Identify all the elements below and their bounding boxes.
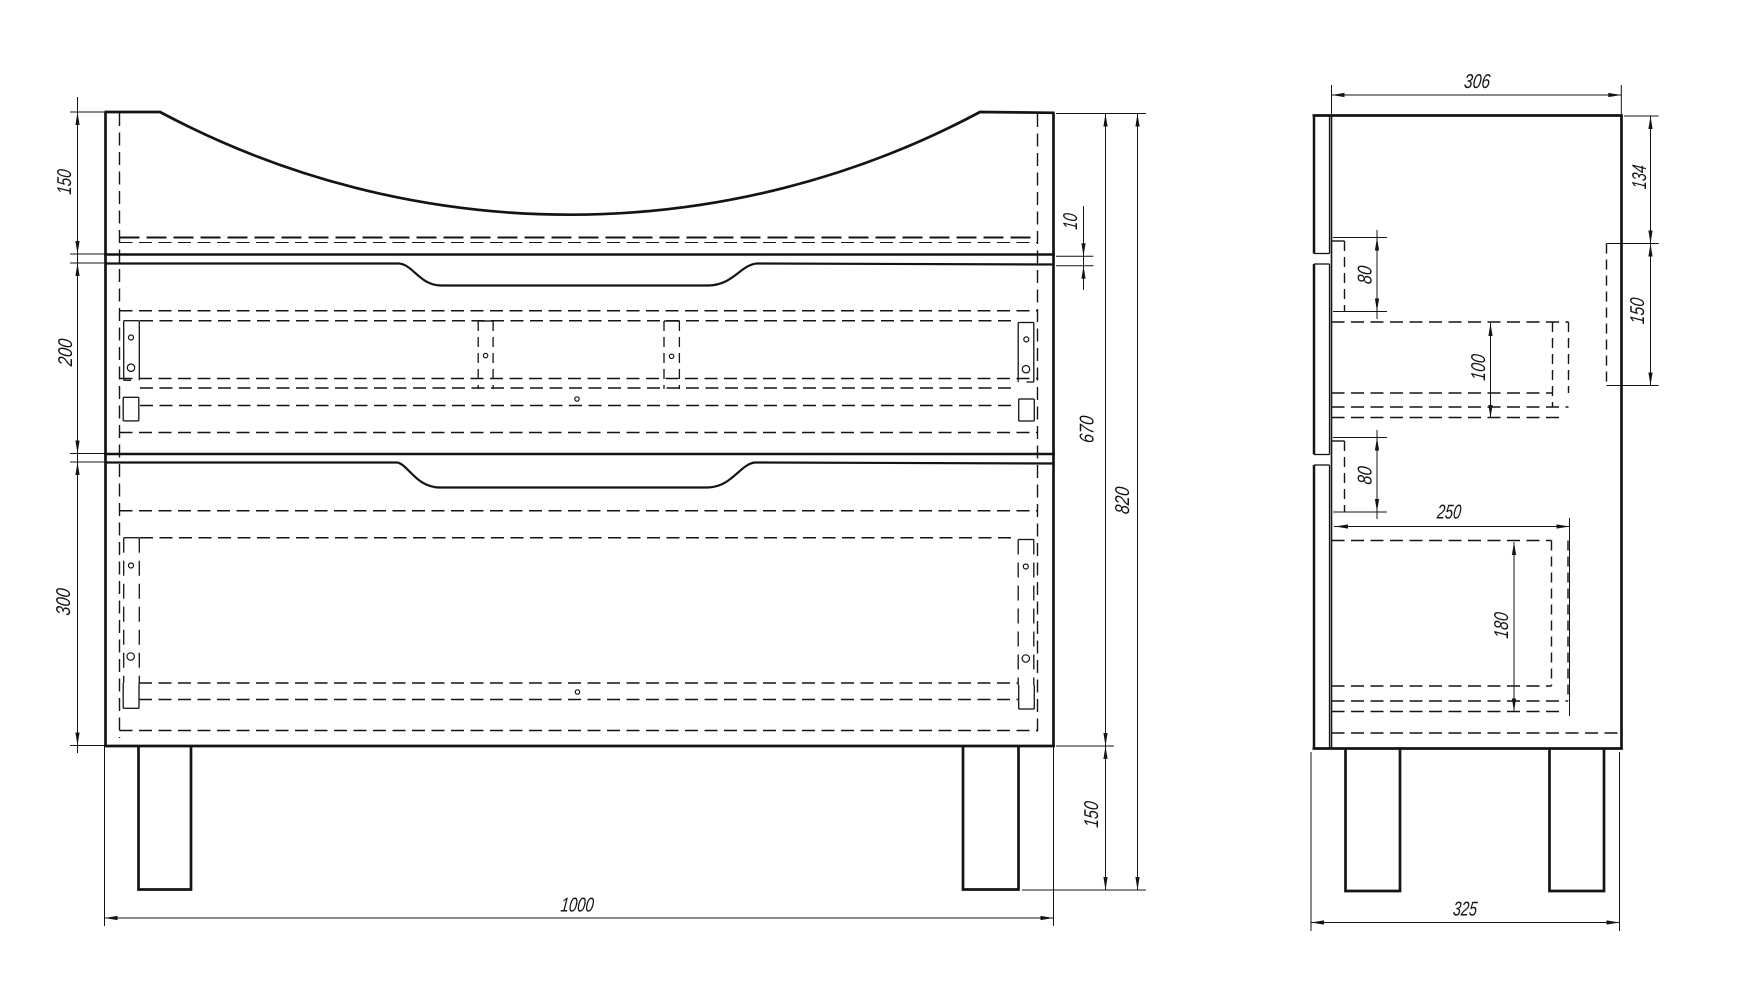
svg-text:1000: 1000 [560,895,595,917]
svg-text:80: 80 [1355,465,1377,485]
svg-text:250: 250 [1435,502,1462,524]
svg-text:150: 150 [54,168,76,195]
svg-text:200: 200 [55,338,77,368]
svg-text:80: 80 [1355,265,1377,285]
svg-text:820: 820 [1112,486,1134,515]
svg-text:300: 300 [53,587,75,616]
svg-text:134: 134 [1629,164,1651,190]
svg-text:10: 10 [1060,212,1082,230]
svg-text:150: 150 [1081,800,1103,828]
svg-text:306: 306 [1463,71,1492,93]
svg-text:670: 670 [1077,415,1099,444]
svg-text:325: 325 [1452,899,1479,921]
svg-text:180: 180 [1491,611,1513,639]
svg-text:100: 100 [1468,353,1490,381]
svg-text:150: 150 [1627,297,1649,325]
